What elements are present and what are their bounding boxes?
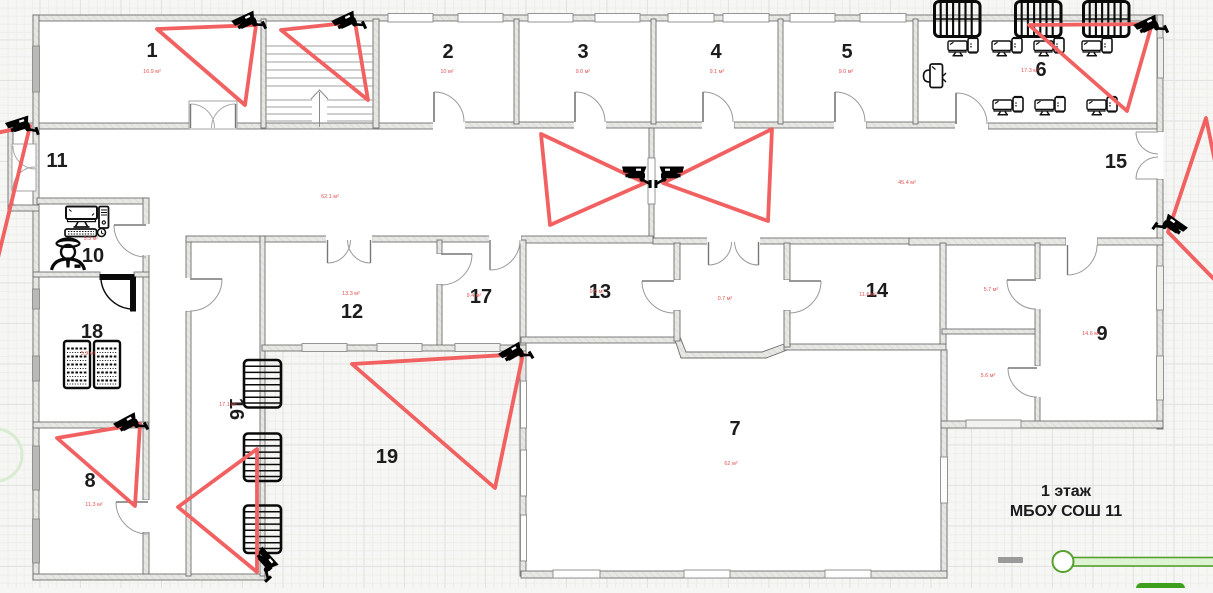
svg-text:1 этаж: 1 этаж: [1041, 483, 1092, 500]
svg-text:11: 11: [46, 150, 67, 172]
svg-text:1: 1: [146, 40, 157, 62]
svg-text:5.7 м²: 5.7 м²: [984, 287, 999, 293]
svg-text:62 м²: 62 м²: [724, 461, 737, 467]
svg-text:5.6 м²: 5.6 м²: [981, 373, 996, 379]
svg-text:0.7 м²: 0.7 м²: [718, 296, 733, 302]
svg-text:9.0 м²: 9.0 м²: [576, 69, 591, 75]
svg-text:5.9 м²: 5.9 м²: [81, 351, 96, 357]
svg-text:15: 15: [1105, 151, 1127, 173]
svg-text:16.9 м²: 16.9 м²: [143, 69, 161, 75]
svg-text:4: 4: [710, 41, 722, 63]
svg-text:10: 10: [82, 245, 104, 267]
svg-text:9.1 м²: 9.1 м²: [710, 69, 725, 75]
svg-text:5.3 м²: 5.3 м²: [84, 236, 99, 242]
svg-text:13.3 м²: 13.3 м²: [342, 291, 360, 297]
svg-text:10 м²: 10 м²: [440, 69, 453, 75]
svg-text:11.3 м²: 11.3 м²: [85, 502, 103, 508]
svg-text:8: 8: [84, 470, 95, 492]
svg-text:12: 12: [341, 301, 363, 323]
svg-text:14: 14: [866, 280, 889, 302]
svg-text:5: 5: [841, 41, 852, 63]
svg-text:45.4 м²: 45.4 м²: [898, 180, 916, 186]
svg-text:МБОУ СОШ 11: МБОУ СОШ 11: [1010, 503, 1122, 520]
svg-text:17.1 м²: 17.1 м²: [219, 402, 237, 408]
svg-text:9.4 м²: 9.4 м²: [467, 293, 482, 299]
svg-text:14.6 м²: 14.6 м²: [1082, 331, 1100, 337]
svg-text:2: 2: [442, 41, 453, 63]
svg-text:7: 7: [729, 418, 740, 440]
svg-text:17.3 м²: 17.3 м²: [1021, 68, 1039, 74]
svg-text:3: 3: [577, 41, 588, 63]
svg-text:18: 18: [81, 321, 103, 343]
svg-text:11.6 м²: 11.6 м²: [859, 292, 877, 298]
svg-text:19: 19: [376, 446, 398, 468]
svg-text:9.0 м²: 9.0 м²: [839, 69, 854, 75]
svg-text:62.1 м²: 62.1 м²: [321, 194, 339, 200]
svg-text:9.6 м²: 9.6 м²: [590, 289, 605, 295]
